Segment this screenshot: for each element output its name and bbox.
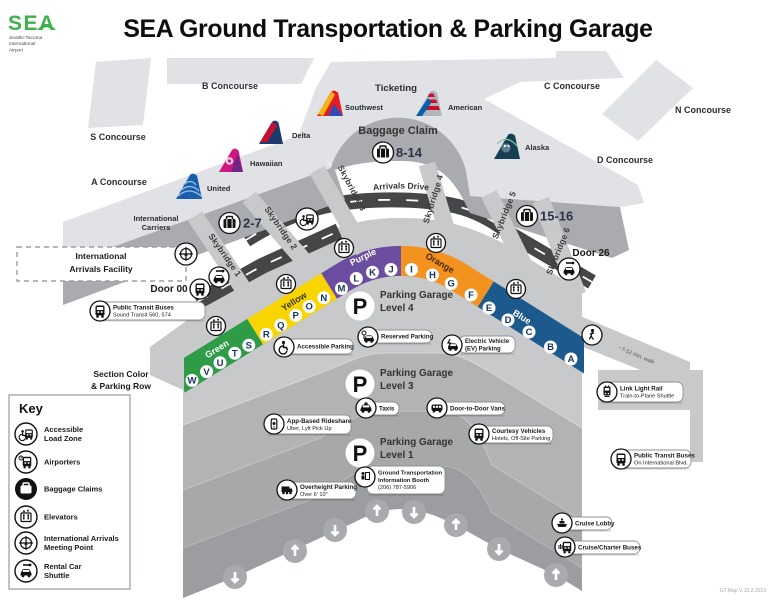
svg-text:Key: Key [19,401,44,416]
svg-text:Level 3: Level 3 [380,381,414,392]
svg-text:International: International [133,214,178,223]
svg-text:H: H [429,270,436,281]
svg-text:O: O [306,302,313,313]
svg-text:International: International [75,251,126,261]
svg-text:App-Based Rideshare: App-Based Rideshare [287,418,352,425]
svg-text:A: A [568,354,575,365]
svg-text:P: P [353,441,368,466]
svg-text:Parking Garage: Parking Garage [380,368,454,379]
svg-text:Hotels, Off-Site Parking: Hotels, Off-Site Parking [492,436,550,442]
svg-text:W: W [188,376,197,387]
svg-text:Hawaiian: Hawaiian [250,159,283,168]
svg-text:Airporters: Airporters [44,458,80,467]
svg-text:G: G [448,279,455,290]
svg-text:T: T [232,349,238,360]
svg-text:Door 26: Door 26 [572,248,610,259]
svg-text:Level 4: Level 4 [380,303,414,314]
svg-text:C: C [526,327,533,338]
svg-text:Ground Transportation: Ground Transportation [378,471,443,477]
svg-text:F: F [468,290,474,301]
svg-text:(206) 787-5906: (206) 787-5906 [378,485,416,491]
svg-text:N: N [320,293,327,304]
svg-text:Rental Car: Rental Car [44,562,82,571]
svg-text:P: P [353,372,368,397]
svg-text:S Concourse: S Concourse [90,132,146,142]
svg-text:Q: Q [277,320,284,331]
svg-text:Alaska: Alaska [525,143,550,152]
svg-text:Door-to-Door Vans: Door-to-Door Vans [450,406,506,413]
svg-text:Cruise/Charter Buses: Cruise/Charter Buses [578,545,642,552]
svg-text:Seattle-Tacoma: Seattle-Tacoma [9,35,43,41]
svg-text:Sound Transit 560, 574: Sound Transit 560, 574 [113,313,171,319]
svg-text:D Concourse: D Concourse [597,155,653,165]
svg-text:Meeting Point: Meeting Point [44,543,94,552]
svg-text:Public Transit Buses: Public Transit Buses [113,304,174,311]
svg-text:D: D [505,315,512,326]
svg-text:15-16: 15-16 [540,209,573,224]
svg-text:International Arrivals: International Arrivals [44,534,119,543]
svg-text:American: American [448,103,483,112]
svg-text:Public Transit Buses: Public Transit Buses [634,452,695,459]
svg-text:On International Blvd.: On International Blvd. [634,461,688,467]
svg-text:Arrivals Facility: Arrivals Facility [69,264,133,274]
svg-text:V: V [203,367,210,378]
svg-text:I: I [410,265,413,276]
svg-text:U: U [217,358,224,369]
svg-text:GT Map V 10.3.2023: GT Map V 10.3.2023 [720,588,767,594]
svg-text:Shuttle: Shuttle [44,571,69,580]
svg-text:Ticketing: Ticketing [375,83,417,94]
svg-text:Accessible Parking: Accessible Parking [297,344,354,351]
svg-text:& Parking Row: & Parking Row [91,381,151,391]
svg-text:N Concourse: N Concourse [675,105,731,115]
svg-text:L: L [353,274,359,285]
svg-text:Door 00: Door 00 [150,284,188,295]
svg-text:J: J [388,265,393,276]
svg-text:Parking Garage: Parking Garage [380,290,454,301]
svg-text:Overheight Parking: Overheight Parking [300,484,357,491]
svg-text:B: B [547,342,554,353]
svg-text:P: P [353,294,368,319]
svg-text:Baggage Claim: Baggage Claim [358,125,438,137]
svg-text:Airport: Airport [9,47,24,53]
svg-text:Baggage Claims: Baggage Claims [44,485,102,494]
svg-text:Link Light Rail: Link Light Rail [620,385,663,392]
svg-text:8-14: 8-14 [396,145,423,160]
svg-text:Delta: Delta [292,131,311,140]
svg-text:United: United [207,184,231,193]
svg-text:Section Color: Section Color [93,369,149,379]
svg-text:Taxis: Taxis [379,406,395,413]
svg-text:K: K [369,268,376,279]
svg-text:Parking Garage: Parking Garage [380,437,454,448]
svg-text:Electric Vehicle: Electric Vehicle [465,339,510,345]
svg-text:2-7: 2-7 [243,216,262,231]
svg-text:International: International [9,41,35,47]
svg-text:A Concourse: A Concourse [91,177,147,187]
svg-text:SEA: SEA [8,12,56,35]
svg-text:Cruise Lobby: Cruise Lobby [575,521,615,528]
svg-text:Carriers: Carriers [142,223,171,232]
svg-text:C Concourse: C Concourse [544,81,600,91]
svg-text:B Concourse: B Concourse [202,81,258,91]
svg-text:Accessible: Accessible [44,425,83,434]
svg-text:Over 6' 10": Over 6' 10" [300,492,328,498]
svg-text:(EV) Parking: (EV) Parking [465,346,501,352]
svg-text:S: S [246,341,252,352]
svg-text:Elevators: Elevators [44,513,78,522]
svg-text:E: E [486,303,492,314]
svg-text:M: M [338,284,346,295]
svg-text:Southwest: Southwest [345,103,383,112]
svg-text:R: R [263,330,270,341]
svg-text:Reserved Parking: Reserved Parking [381,334,433,341]
svg-text:Uber, Lyft Pick Up: Uber, Lyft Pick Up [287,426,332,432]
svg-text:Level 1: Level 1 [380,450,414,461]
svg-text:P: P [293,311,300,322]
svg-text:Load Zone: Load Zone [44,434,82,443]
svg-text:Train-to-Plane Shuttle: Train-to-Plane Shuttle [620,394,674,400]
svg-text:Information Booth: Information Booth [378,478,429,484]
svg-text:SEA Ground Transportation & Pa: SEA Ground Transportation & Parking Gara… [123,16,652,43]
svg-text:Courtesy Vehicles: Courtesy Vehicles [492,428,546,435]
